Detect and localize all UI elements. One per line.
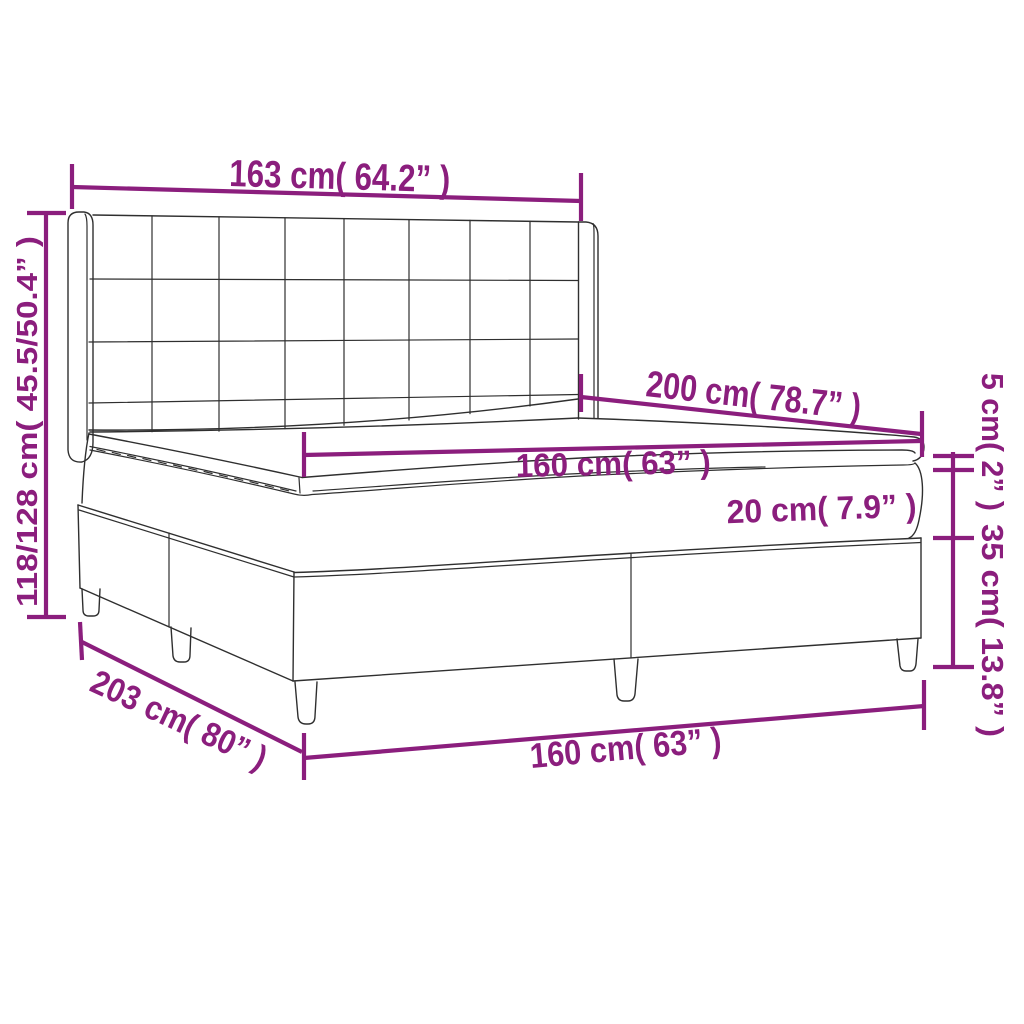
svg-text:20 cm( 7.9” ): 20 cm( 7.9” ) (726, 487, 917, 531)
svg-text:163 cm( 64.2” ): 163 cm( 64.2” ) (229, 153, 451, 201)
svg-text:5 cm( 2” ): 5 cm( 2” ) (975, 373, 1010, 511)
svg-text:160 cm( 63” ): 160 cm( 63” ) (515, 443, 711, 484)
svg-text:35 cm( 13.8” ): 35 cm( 13.8” ) (975, 524, 1010, 737)
svg-text:118/128 cm( 45.5/50.4” ): 118/128 cm( 45.5/50.4” ) (12, 236, 44, 607)
